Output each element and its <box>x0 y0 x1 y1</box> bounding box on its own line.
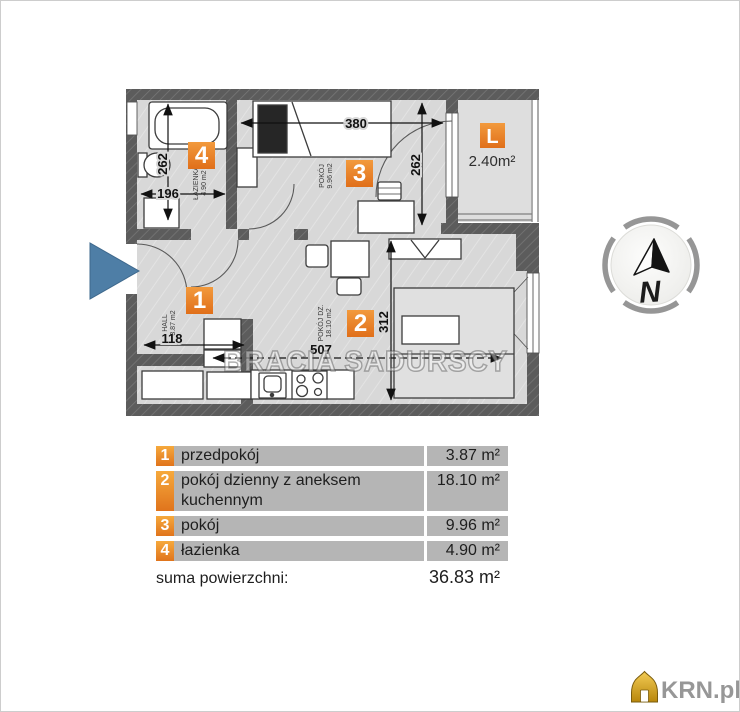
wall-balcony-post-bottom <box>446 197 458 223</box>
badge-l: L <box>486 126 498 148</box>
wall-balcony-bottom <box>441 223 516 234</box>
legend-row-2-name: pokój dzienny z aneksem kuchennym <box>174 471 424 511</box>
legend-row-4-name: łazienka <box>174 541 424 561</box>
krn-logo: KRN.pl <box>632 672 740 705</box>
legend-row-2-area: 18.10 m² <box>427 471 508 511</box>
bed-room2 <box>394 288 514 398</box>
tv-cabinet <box>389 239 461 259</box>
legend-row-3: 3 pokój 9.96 m² <box>156 516 508 536</box>
legend-sum-value: 36.83 m² <box>429 567 508 587</box>
svg-text:POKÓJ DZ.: POKÓJ DZ. <box>316 304 325 341</box>
svg-text:HALL: HALL <box>162 314 169 332</box>
dim-room3-height: 262 <box>408 154 423 176</box>
svg-text:3.87 m2: 3.87 m2 <box>170 310 177 335</box>
legend-row-2-number: 2 <box>156 471 174 511</box>
legend-sum-row: suma powierzchni: 36.83 m² <box>156 567 508 589</box>
bathroom-window <box>127 102 137 135</box>
badge-2: 2 <box>354 310 367 337</box>
svg-text:18.10 m2: 18.10 m2 <box>326 308 333 337</box>
legend-row-1-name: przedpokój <box>174 446 424 466</box>
legend-row-4-area: 4.90 m² <box>427 541 508 561</box>
compass-icon: N <box>605 219 697 311</box>
dim-room3-width: 380 <box>345 116 367 131</box>
wall-top <box>126 89 539 100</box>
legend-row-3-area: 9.96 m² <box>427 516 508 536</box>
dim-bath-width: 196 <box>157 186 179 201</box>
house-door <box>641 690 649 702</box>
dim-room2-height: 312 <box>376 311 391 333</box>
legend-row-1-number: 1 <box>156 446 174 466</box>
legend-sum-label: suma powierzchni: <box>156 569 289 589</box>
svg-text:4.90 m2: 4.90 m2 <box>201 170 208 195</box>
wall-right-lower <box>527 353 539 404</box>
wall-corner-block <box>516 223 539 271</box>
legend-row-4-number: 4 <box>156 541 174 561</box>
legend-row-4: 4 łazienka 4.90 m² <box>156 541 508 561</box>
balcony-area-label: 2.40m² <box>469 153 516 170</box>
wall-post-2 <box>294 229 308 240</box>
badge-3: 3 <box>353 160 366 187</box>
wall-wardrobe-nook <box>137 354 204 366</box>
bathroom-cabinet <box>144 198 179 228</box>
legend-row-3-number: 3 <box>156 516 174 536</box>
wardrobe <box>142 371 203 399</box>
watermark-text: BRACIA SADURSCY <box>223 346 508 378</box>
svg-text:9.96 m2: 9.96 m2 <box>327 163 334 188</box>
legend-row-1-area: 3.87 m² <box>427 446 508 466</box>
krn-logo-text: KRN.pl <box>661 677 740 704</box>
bed-room3 <box>253 101 391 157</box>
wall-bottom <box>126 404 539 416</box>
floor-plan-page: 380 262 262 196 118 507 312 ŁAZIENKA 4.9… <box>0 0 740 712</box>
wall-left-lower <box>126 294 137 404</box>
wall-post-1 <box>238 229 249 240</box>
wall-hall-divider-a <box>126 229 191 240</box>
svg-text:ŁAZIENKA: ŁAZIENKA <box>193 166 200 200</box>
label-bathroom: ŁAZIENKA 4.90 m2 <box>193 166 208 200</box>
badge-4: 4 <box>195 142 209 169</box>
label-room2: POKÓJ DZ. 18.10 m2 <box>316 304 333 341</box>
badge-1: 1 <box>193 287 206 314</box>
label-room3: POKÓJ 9.96 m2 <box>317 163 334 188</box>
compass-north-label: N <box>638 275 663 310</box>
legend-row-1: 1 przedpokój 3.87 m² <box>156 446 508 466</box>
entrance-arrow-icon <box>90 243 139 299</box>
svg-text:POKÓJ: POKÓJ <box>317 164 326 188</box>
legend-table: 1 przedpokój 3.87 m² 2 pokój dzienny z a… <box>156 446 508 589</box>
wall-balcony-post-top <box>446 100 458 113</box>
legend-row-2: 2 pokój dzienny z aneksem kuchennym 18.1… <box>156 471 508 511</box>
legend-row-3-name: pokój <box>174 516 424 536</box>
floor-plan-drawing: 380 262 262 196 118 507 312 ŁAZIENKA 4.9… <box>1 1 740 712</box>
dim-bath-height: 262 <box>155 153 170 175</box>
bathtub <box>149 102 227 149</box>
